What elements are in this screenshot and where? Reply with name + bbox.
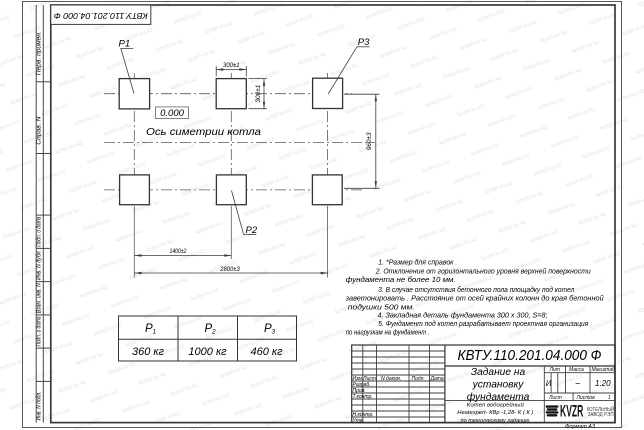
svg-text:Т.контр.: Т.контр. xyxy=(353,394,373,400)
svg-text:360 кг: 360 кг xyxy=(132,346,165,358)
svg-text:Лит: Лит xyxy=(549,367,560,373)
svg-text:Масса: Масса xyxy=(569,367,584,373)
svg-text:КВТУ.110.201.04.000 Ф: КВТУ.110.201.04.000 Ф xyxy=(458,348,602,364)
svg-text:960±3: 960±3 xyxy=(366,132,373,150)
svg-text:установку: установку xyxy=(472,380,525,391)
svg-text:И: И xyxy=(546,379,552,388)
svg-text:1000 кг: 1000 кг xyxy=(188,346,227,358)
svg-text:Перв. примен.: Перв. примен. xyxy=(36,31,42,75)
svg-text:P1: P1 xyxy=(119,38,131,49)
svg-text:по техническому заданию: по техническому заданию xyxy=(461,418,531,424)
svg-text:Листов: Листов xyxy=(576,395,596,401)
svg-text:Котел водогрейный: Котел водогрейный xyxy=(467,401,524,408)
svg-text:Лист: Лист xyxy=(548,395,562,401)
svg-text:2. Отклонение от горизонтально: 2. Отклонение от горизонтального уровня … xyxy=(375,266,591,275)
svg-text:1: 1 xyxy=(608,395,611,401)
svg-text:Масштаб: Масштаб xyxy=(592,367,616,373)
svg-text:300±1: 300±1 xyxy=(255,84,262,102)
svg-text:–: – xyxy=(575,379,581,388)
svg-text:kotel-kv.kz: kotel-kv.kz xyxy=(637,0,644,9)
svg-text:P2: P2 xyxy=(246,225,258,236)
svg-text:Подп.: Подп. xyxy=(412,376,425,382)
svg-text:Инв. N подл.: Инв. N подл. xyxy=(36,392,42,421)
svg-text:заветонировать . Расстояние от: заветонировать . Расстояние от осей край… xyxy=(345,294,604,303)
svg-text:ЗАВОД РЭП: ЗАВОД РЭП xyxy=(588,412,614,418)
svg-text:N докум.: N докум. xyxy=(381,376,401,382)
svg-text:Ось симетрии котла: Ось симетрии котла xyxy=(146,127,262,138)
svg-text:Подп. и дата: Подп. и дата xyxy=(37,216,43,247)
svg-text:1:20: 1:20 xyxy=(595,379,611,388)
svg-text:300±1: 300±1 xyxy=(223,62,240,69)
svg-text:Подп. и дата: Подп. и дата xyxy=(37,316,43,347)
svg-text:Утв.: Утв. xyxy=(353,418,364,424)
svg-text:1400±2: 1400±2 xyxy=(170,248,187,255)
svg-text:фундамента: фундамента xyxy=(467,391,530,403)
svg-text:Heatexpert- КВр -1,28- К ( К ): Heatexpert- КВр -1,28- К ( К ) xyxy=(457,410,533,416)
svg-text:Задание на: Задание на xyxy=(471,367,526,378)
svg-text:Формат А3: Формат А3 xyxy=(565,424,595,430)
svg-text:Дата: Дата xyxy=(430,376,444,382)
svg-text:1: 1 xyxy=(153,329,157,336)
svg-text:460 кг: 460 кг xyxy=(250,346,283,358)
svg-text:фундамента не более 10 мм.: фундамента не более 10 мм. xyxy=(346,275,456,284)
svg-text:0.000: 0.000 xyxy=(160,108,184,119)
svg-text:2800±3: 2800±3 xyxy=(219,266,240,273)
svg-text:KVZR: KVZR xyxy=(560,402,584,421)
svg-text:Взам. инв. N: Взам. инв. N xyxy=(37,283,43,314)
svg-text:3. В случае отсутствия бетонно: 3. В случае отсутствия бетонного пола пл… xyxy=(378,285,574,294)
svg-text:по нагрузкам на фундамент .: по нагрузкам на фундамент . xyxy=(346,328,430,337)
svg-text:КВТУ.110.201.04.000 Ф: КВТУ.110.201.04.000 Ф xyxy=(54,11,148,20)
svg-text:P3: P3 xyxy=(358,37,370,48)
svg-text:1. *Размер для справок .: 1. *Размер для справок . xyxy=(378,258,457,267)
svg-text:Инв. N дубл.: Инв. N дубл. xyxy=(37,250,43,280)
svg-text:2: 2 xyxy=(211,329,216,336)
svg-text:3: 3 xyxy=(272,329,276,336)
svg-text:Справ. N: Справ. N xyxy=(36,116,42,145)
